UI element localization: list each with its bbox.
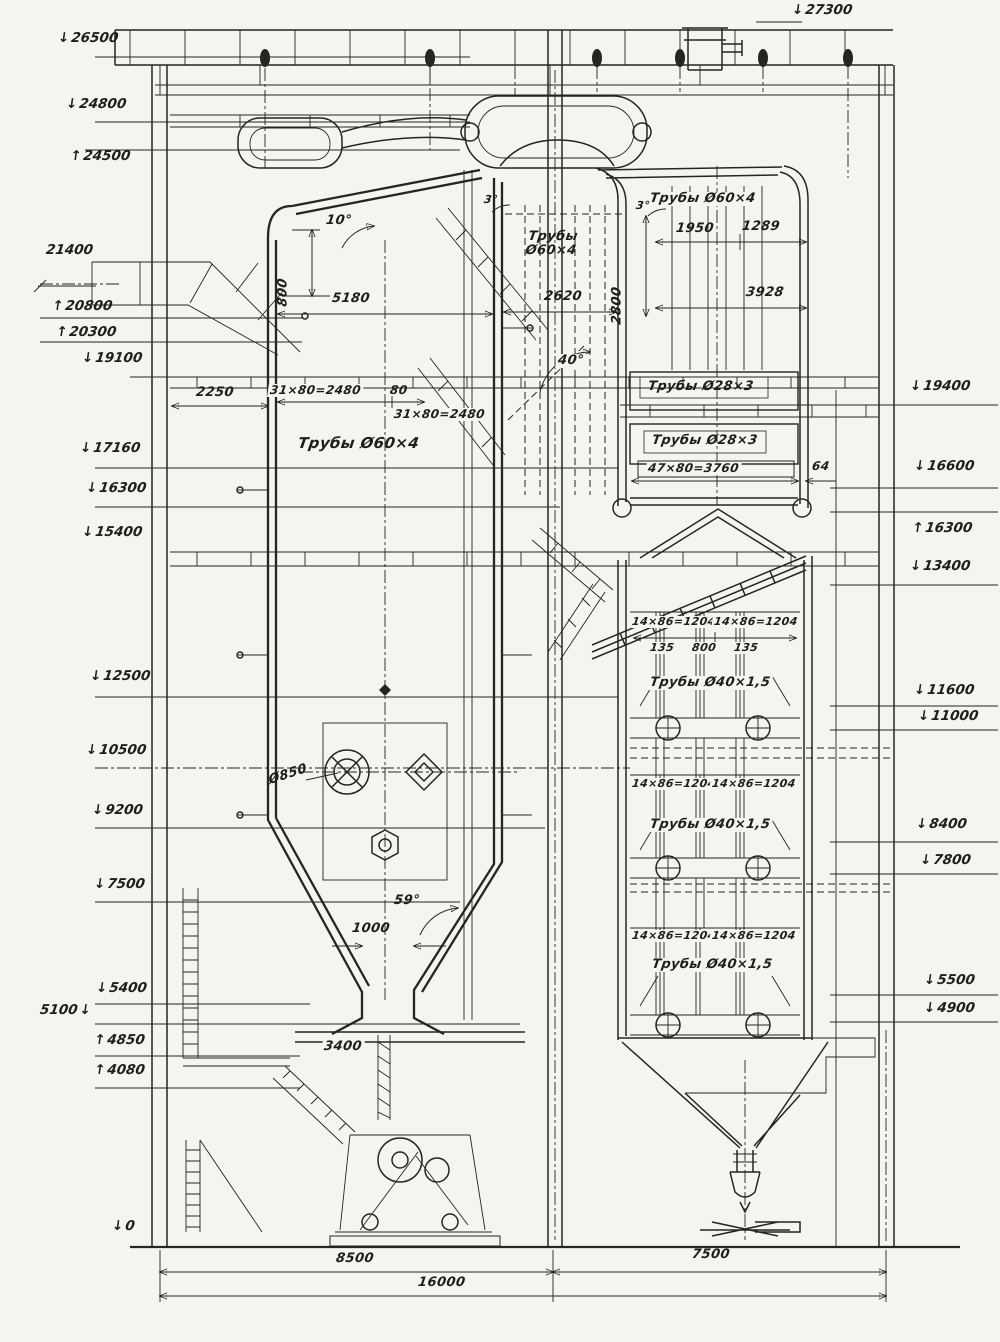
elevation-mark-13400: 13400	[909, 558, 972, 574]
elevation-arrow-icon	[55, 324, 69, 340]
elevation-mark-20800: 20800	[51, 298, 114, 314]
dim-pitch-a: 31×80=2480	[267, 384, 364, 397]
elevation-mark-0: 0	[111, 1218, 136, 1234]
angle-3-right: 3°	[635, 200, 651, 212]
elevation-arrow-icon	[69, 148, 83, 164]
elevation-arrow-icon	[915, 816, 929, 832]
dim-econ-pitch-1b: 14×86=1204	[711, 616, 800, 628]
drawing-sheet: 26500 24800 24500 21400 20800 20300 1910…	[0, 0, 1000, 1342]
elevation-mark-24500: 24500	[69, 148, 132, 164]
elevation-arrow-icon	[78, 1002, 92, 1018]
furnace-walls	[130, 170, 960, 1247]
elevation-arrow-icon	[909, 378, 923, 394]
elevation-arrow-icon	[85, 480, 99, 496]
elevation-arrow-icon	[65, 96, 79, 112]
dim-800-econ: 800	[689, 642, 719, 654]
dim-80: 80	[389, 384, 408, 397]
dim-800-roof: 800	[276, 277, 290, 307]
elevation-arrow-icon	[917, 708, 931, 724]
elevation-mark-4900: 4900	[923, 1000, 976, 1016]
elevation-arrow-icon	[57, 30, 71, 46]
angle-40: 40°	[555, 354, 587, 368]
elevation-arrow-icon	[93, 1032, 107, 1048]
elevation-mark-5100: 5100	[39, 1002, 92, 1018]
elevation-mark-16300-left: 16300	[85, 480, 148, 496]
dim-64: 64	[811, 460, 830, 473]
elevation-mark-27300: 27300	[791, 2, 854, 18]
elevation-arrow-icon	[93, 1062, 107, 1078]
dim-3400: 3400	[321, 1040, 365, 1054]
elevation-mark-7800: 7800	[919, 852, 972, 868]
pipe-label-econ-2: Трубы Ø40×1,5	[647, 818, 773, 832]
dim-coil-pitch: 47×80=3760	[645, 462, 742, 475]
dim-1289: 1289	[741, 220, 781, 234]
elevation-arrow-icon	[913, 458, 927, 474]
elevation-arrow-icon	[923, 1000, 937, 1016]
elevation-arrow-icon	[791, 2, 805, 18]
elevation-arrow-icon	[85, 742, 99, 758]
elevation-arrow-icon	[911, 520, 925, 536]
elevation-arrow-icon	[89, 668, 103, 684]
pipe-label-coil-lower: Трубы Ø28×3	[651, 434, 758, 448]
elevation-mark-4080: 4080	[93, 1062, 146, 1078]
elevation-arrow-icon	[111, 1218, 125, 1234]
elevation-mark-5500: 5500	[923, 972, 976, 988]
dim-1950: 1950	[675, 222, 715, 236]
angle-10: 10°	[325, 214, 353, 228]
elevation-arrow-icon	[919, 852, 933, 868]
dim-econ-pitch-2a: 14×86=1204	[629, 778, 718, 790]
elevation-mark-11600: 11600	[913, 682, 976, 698]
elevation-arrow-icon	[95, 980, 109, 996]
dim-2800: 2800	[610, 286, 624, 326]
elevation-mark-26500: 26500	[57, 30, 120, 46]
elevation-arrow-icon	[51, 298, 65, 314]
elevation-mark-4850: 4850	[93, 1032, 146, 1048]
elevation-arrow-icon	[81, 524, 95, 540]
elevation-mark-16600: 16600	[913, 458, 976, 474]
dim-2620: 2620	[543, 290, 583, 304]
dim-econ-pitch-2b: 14×86=1204	[709, 778, 798, 790]
elevation-mark-17160: 17160	[79, 440, 142, 456]
elevation-mark-20300: 20300	[55, 324, 118, 340]
dim-pitch-b: 31×80=2480	[391, 408, 488, 421]
elevation-mark-15400: 15400	[81, 524, 144, 540]
elevation-mark-24800: 24800	[65, 96, 128, 112]
dim-5180: 5180	[331, 292, 371, 306]
elevation-mark-21400: 21400	[43, 242, 94, 258]
pipe-label-coil-upper: Трубы Ø28×3	[647, 380, 754, 394]
dim-econ-pitch-3a: 14×86=1204	[629, 930, 718, 942]
elevation-arrow-icon	[923, 972, 937, 988]
elevation-mark-16300-right: 16300	[911, 520, 974, 536]
pipe-label-rear-top: Трубы Ø60×4	[647, 192, 758, 206]
dim-econ-pitch-1a: 14×86=1204	[629, 616, 718, 628]
elevation-mark-7500: 7500	[93, 876, 146, 892]
elevation-mark-8400: 8400	[915, 816, 968, 832]
elevation-mark-5400: 5400	[95, 980, 148, 996]
dim-econ-pitch-3b: 14×86=1204	[709, 930, 798, 942]
pipe-label-econ-1: Трубы Ø40×1,5	[647, 676, 773, 690]
dim-2250: 2250	[195, 386, 235, 400]
elevation-mark-12500: 12500	[89, 668, 152, 684]
elevation-arrow-icon	[91, 802, 105, 818]
dim-135-a: 135	[647, 642, 677, 654]
pipe-label-furnace: Трубы Ø60×4	[297, 436, 420, 452]
dim-8500: 8500	[335, 1252, 375, 1266]
angle-59: 59°	[393, 894, 421, 908]
angle-3-left: 3°	[483, 194, 499, 206]
elevation-arrow-icon	[913, 682, 927, 698]
elevation-mark-9200: 9200	[91, 802, 144, 818]
dim-16000: 16000	[417, 1276, 466, 1290]
pipe-label-center-pass: Трубы Ø60×4	[514, 230, 590, 257]
elevation-arrow-icon	[909, 558, 923, 574]
dim-135-b: 135	[731, 642, 761, 654]
elevation-mark-19400: 19400	[909, 378, 972, 394]
elevation-mark-19100: 19100	[81, 350, 144, 366]
dim-1000: 1000	[351, 922, 391, 936]
elevation-mark-11000: 11000	[917, 708, 980, 724]
elevation-mark-10500: 10500	[85, 742, 148, 758]
elevation-arrow-icon	[93, 876, 107, 892]
pipe-label-econ-3: Трубы Ø40×1,5	[649, 958, 775, 972]
elevation-arrow-icon	[79, 440, 93, 456]
elevation-arrow-icon	[81, 350, 95, 366]
dim-7500: 7500	[691, 1248, 731, 1262]
dim-3928: 3928	[745, 286, 785, 300]
